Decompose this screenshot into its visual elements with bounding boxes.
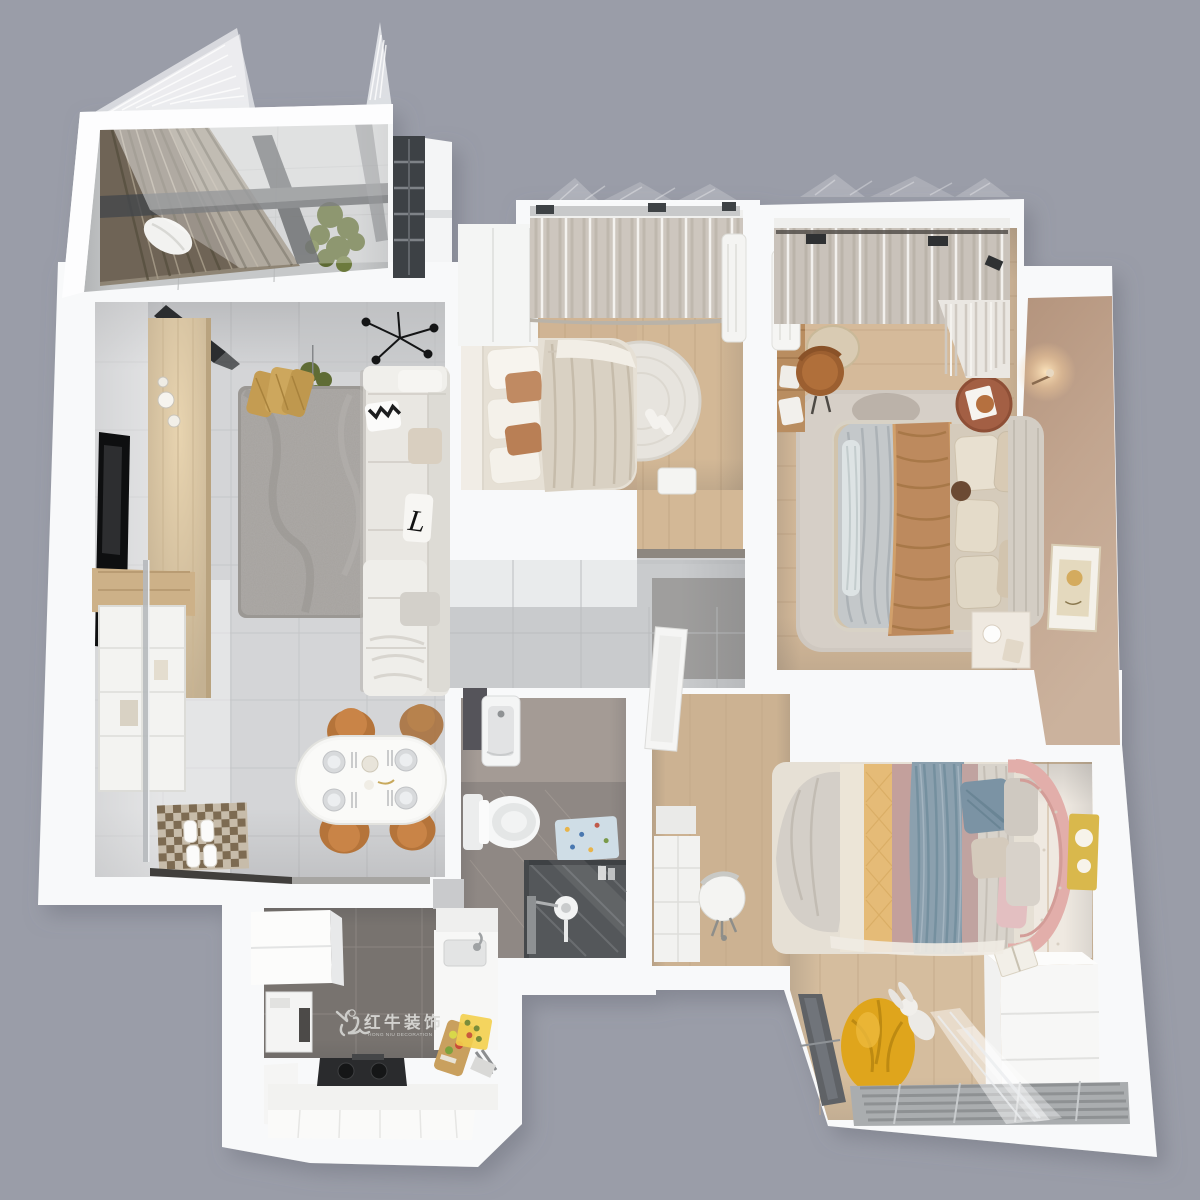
svg-text:红牛装饰: 红牛装饰 xyxy=(364,1012,444,1032)
svg-text:HONG NIU DECORATION: HONG NIU DECORATION xyxy=(368,1032,433,1038)
